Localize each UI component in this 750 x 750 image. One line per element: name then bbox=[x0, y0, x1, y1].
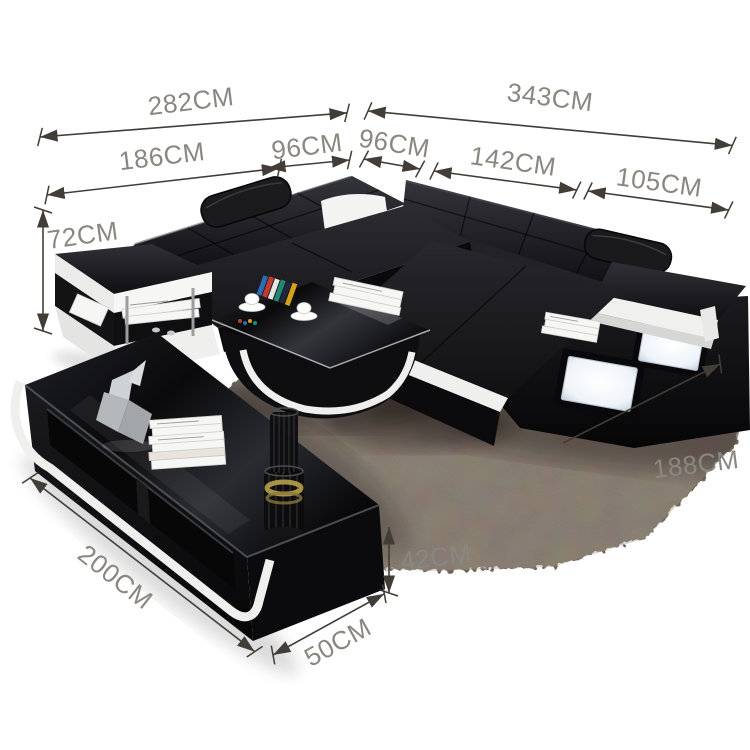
scene-svg: 282CM 343CM 186CM 96CM bbox=[0, 0, 750, 750]
product-image: 282CM 343CM 186CM 96CM bbox=[0, 0, 750, 750]
book-stack bbox=[147, 415, 226, 469]
wire-vase bbox=[264, 408, 304, 537]
